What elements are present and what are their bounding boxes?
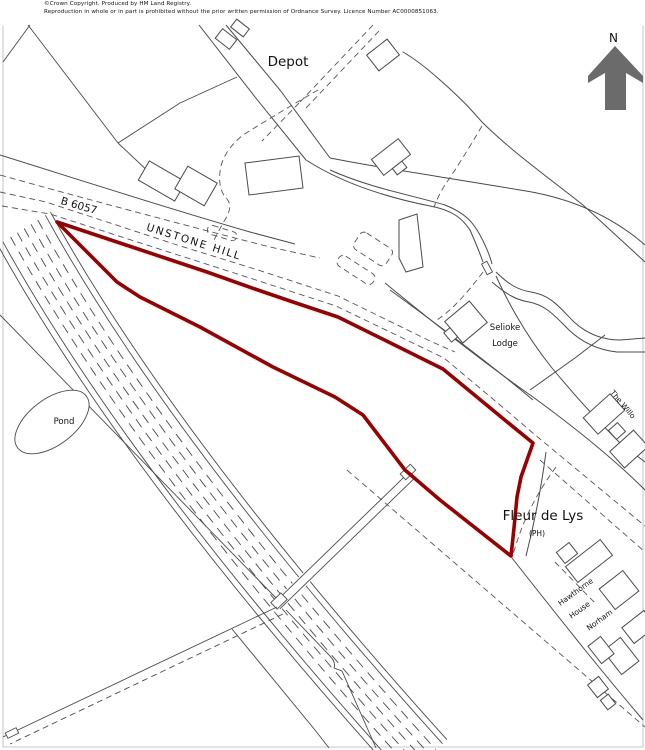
pond-outline (4, 378, 100, 466)
map-label-selioke: Selioke (490, 323, 520, 333)
field-boundaries-southwest (0, 315, 376, 748)
land-registry-title-plan: ©Crown Copyright. Produced by HM Land Re… (0, 0, 645, 750)
dashed-boundaries (0, 25, 645, 727)
map-label-pub-name: Fleur de Lys (503, 508, 584, 524)
map-frame (3, 26, 643, 747)
north-arrow: N (588, 31, 643, 110)
footpath-rail-crossing (271, 464, 416, 609)
building-north-small (367, 39, 400, 71)
building-depot-large (245, 156, 303, 195)
map-label-pub-type: (PH) (529, 529, 545, 538)
map-label-norham: Norham (585, 608, 614, 633)
railway-tracks (0, 212, 447, 750)
map-label-house: House (567, 599, 592, 620)
registered-parcel-boundary (57, 222, 533, 556)
building-depot-small-1 (215, 29, 237, 50)
building-fleur-de-lys-pub (556, 540, 612, 583)
road-lines (0, 25, 645, 720)
building-the-willows (583, 394, 645, 468)
buildings (138, 19, 645, 710)
map-label-pond: Pond (54, 417, 75, 427)
north-arrow-icon (588, 46, 643, 110)
building-north (371, 139, 415, 182)
building-selioke-lodge (439, 301, 488, 348)
field-boundaries-northwest (3, 25, 237, 175)
map-label-hawthorne: Hawthorne (556, 576, 595, 608)
map-label-lodge: Lodge (492, 339, 518, 349)
building-roadside (399, 214, 423, 272)
map-label-road-number: B 6057 (59, 195, 98, 217)
footpath-lower (3, 607, 283, 744)
building-west-of-junction-2 (175, 166, 217, 206)
north-arrow-label: N (609, 31, 618, 45)
site-plan-map: N Depot B 6057 UNSTONE HILL Selioke Lodg… (0, 0, 645, 750)
building-west-of-junction-1 (138, 161, 185, 201)
map-label-depot: Depot (268, 54, 309, 70)
